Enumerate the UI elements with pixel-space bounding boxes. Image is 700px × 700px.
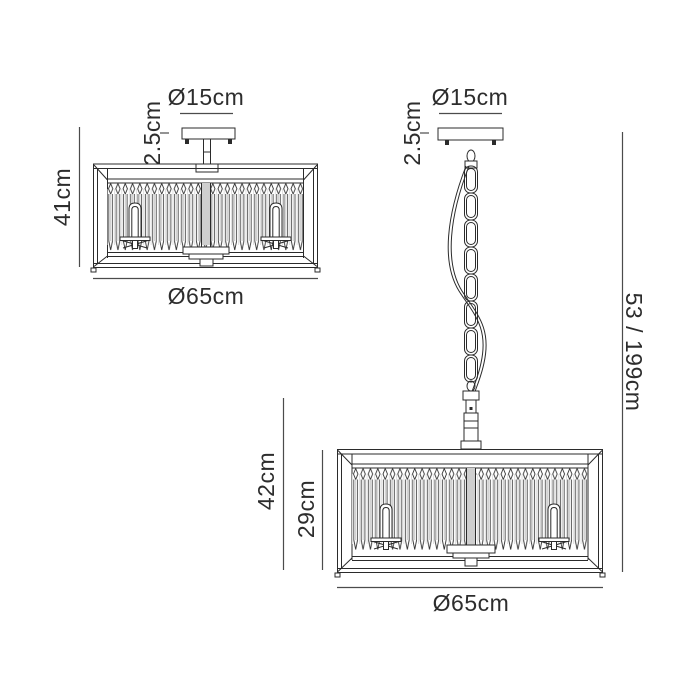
stem-collar xyxy=(461,441,481,449)
dim-label-pendant-canopy-height: 2.5cm xyxy=(399,100,425,165)
dim-label-semiflush-height: 41cm xyxy=(49,168,75,226)
chain-stem-connector xyxy=(461,381,481,449)
dim-label-semiflush-shade-diameter: Ø65cm xyxy=(168,283,245,309)
canopy-screw xyxy=(228,139,232,144)
dimension-diagram: Ø15cm 2.5cm 41cm Ø65cm Ø15cm 2.5cm 53 / … xyxy=(0,0,700,700)
canopy-screw xyxy=(185,139,189,144)
frame-foot xyxy=(600,573,605,577)
bottom-finial xyxy=(200,259,213,266)
pendant-canopy xyxy=(438,128,503,168)
power-cable xyxy=(448,166,486,399)
dim-label-pendant-drop: 53 / 199cm xyxy=(621,293,647,412)
frame-foot xyxy=(335,573,340,577)
dimension-diagram-canvas: Ø15cm 2.5cm 41cm Ø65cm Ø15cm 2.5cm 53 / … xyxy=(0,0,700,700)
frame-foot xyxy=(315,268,320,272)
frame-foot xyxy=(91,268,96,272)
pendant-chain xyxy=(465,166,478,382)
pendant-view xyxy=(335,128,605,577)
dim-label-pendant-canopy-diameter: Ø15cm xyxy=(432,84,509,110)
semiflush-view xyxy=(91,128,320,272)
dim-label-pendant-shade-diameter: Ø65cm xyxy=(433,590,510,616)
canopy-screw xyxy=(445,140,449,145)
canopy-screw xyxy=(492,140,496,145)
bottom-finial xyxy=(465,558,477,566)
dim-label-semiflush-canopy-height: 2.5cm xyxy=(139,100,165,165)
dim-label-semiflush-canopy-diameter: Ø15cm xyxy=(168,84,245,110)
dim-label-pendant-body-height: 42cm xyxy=(253,452,279,510)
dim-label-pendant-shade-height: 29cm xyxy=(293,480,319,538)
semiflush-canopy xyxy=(182,128,235,172)
